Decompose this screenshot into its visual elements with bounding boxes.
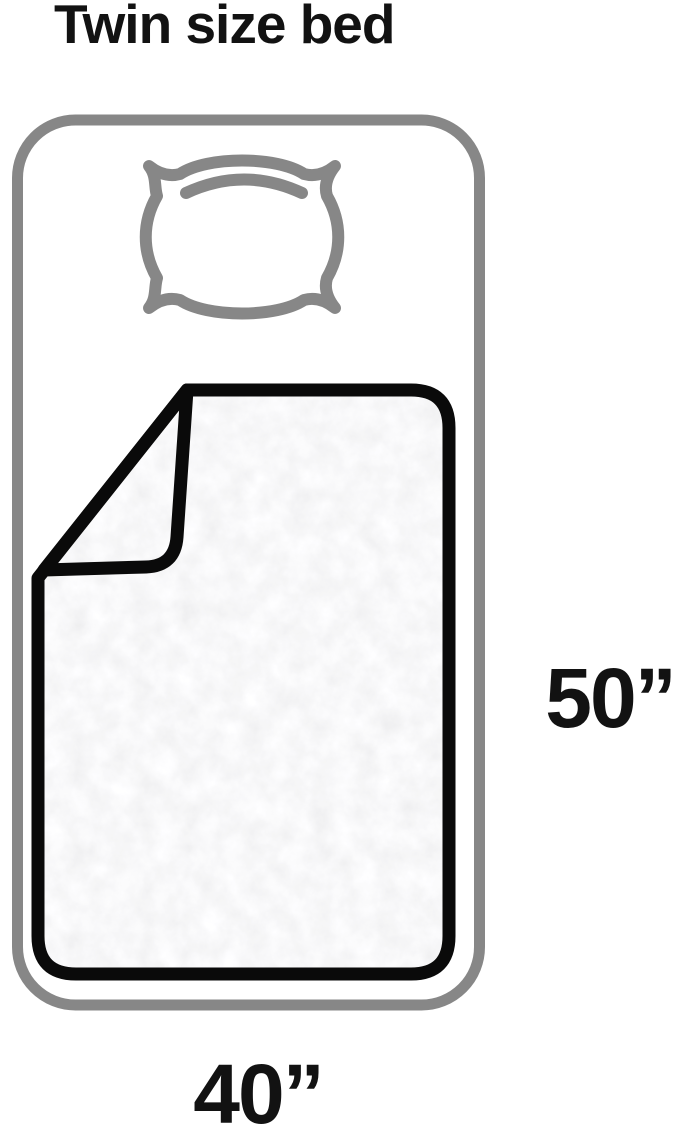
product-dimension-diagram: Twin size bed bbox=[0, 0, 679, 1128]
width-dimension-label: 40” bbox=[193, 1052, 322, 1128]
bed-diagram bbox=[0, 0, 679, 1128]
blanket-texture bbox=[32, 384, 456, 981]
height-dimension-label: 50” bbox=[545, 656, 674, 740]
blanket-icon bbox=[32, 384, 456, 981]
pillow-icon bbox=[146, 161, 339, 314]
